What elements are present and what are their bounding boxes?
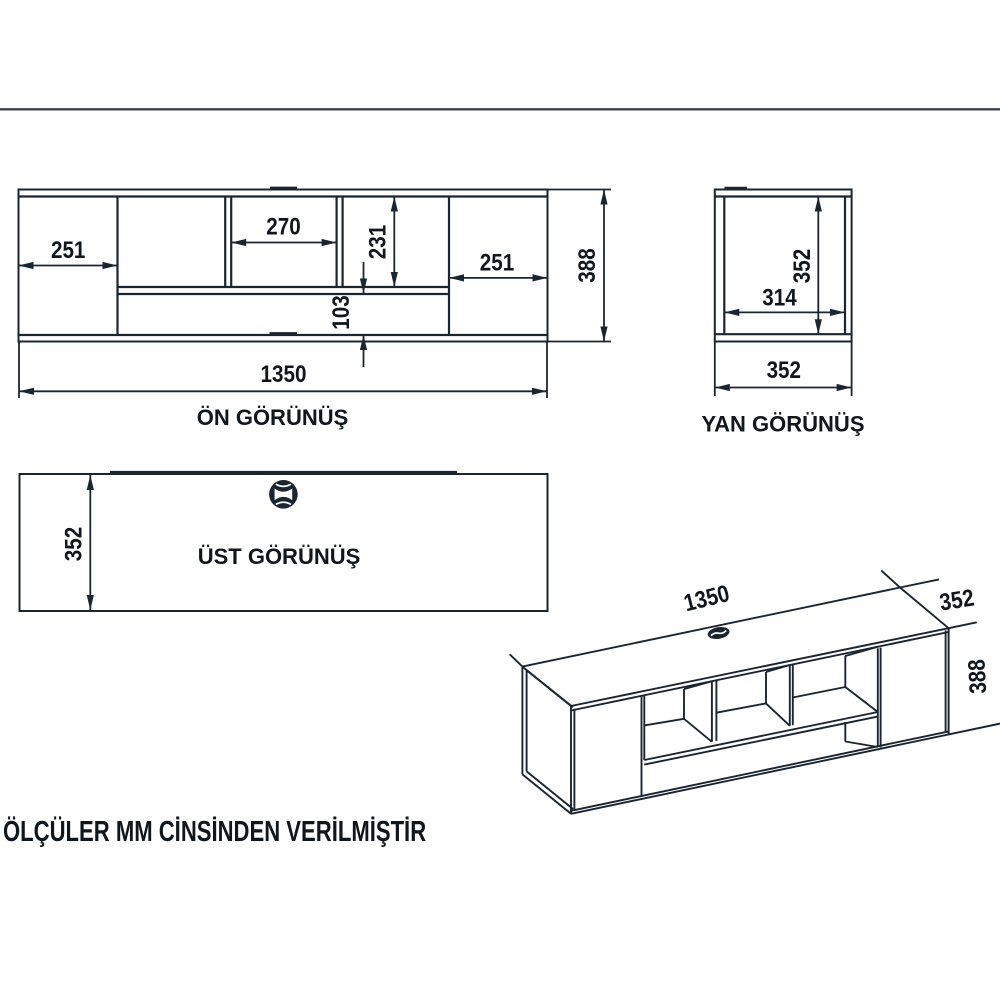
- svg-text:352: 352: [767, 356, 801, 383]
- svg-text:103: 103: [327, 295, 354, 329]
- svg-text:251: 251: [51, 237, 85, 264]
- svg-text:352: 352: [60, 527, 87, 561]
- svg-text:ÖN GÖRÜNÜŞ: ÖN GÖRÜNÜŞ: [197, 405, 349, 430]
- svg-text:1350: 1350: [261, 361, 307, 388]
- svg-text:ÖLÇÜLER MM CİNSİNDEN VERİLMİŞT: ÖLÇÜLER MM CİNSİNDEN VERİLMİŞTİR: [3, 815, 426, 847]
- svg-text:352: 352: [788, 249, 815, 283]
- svg-text:352: 352: [938, 584, 976, 616]
- svg-text:388: 388: [574, 248, 601, 282]
- svg-text:388: 388: [963, 659, 992, 695]
- svg-text:251: 251: [480, 249, 514, 276]
- svg-text:YAN GÖRÜNÜŞ: YAN GÖRÜNÜŞ: [702, 412, 865, 437]
- svg-text:ÜST GÖRÜNÜŞ: ÜST GÖRÜNÜŞ: [198, 544, 361, 569]
- svg-text:231: 231: [364, 225, 391, 259]
- svg-text:270: 270: [266, 213, 300, 240]
- svg-text:314: 314: [762, 284, 797, 311]
